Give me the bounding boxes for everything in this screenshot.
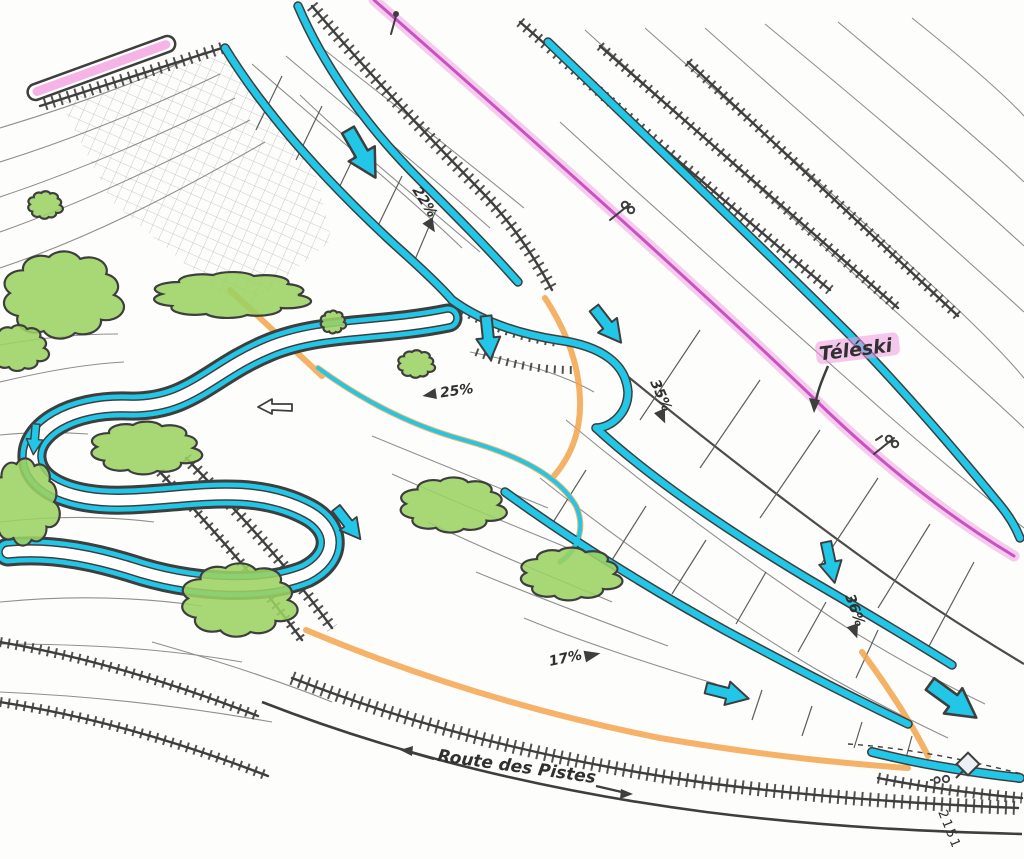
ski-piste-plan: 22% 25% 35% 17% 36% Téléski Rout (0, 0, 1024, 859)
